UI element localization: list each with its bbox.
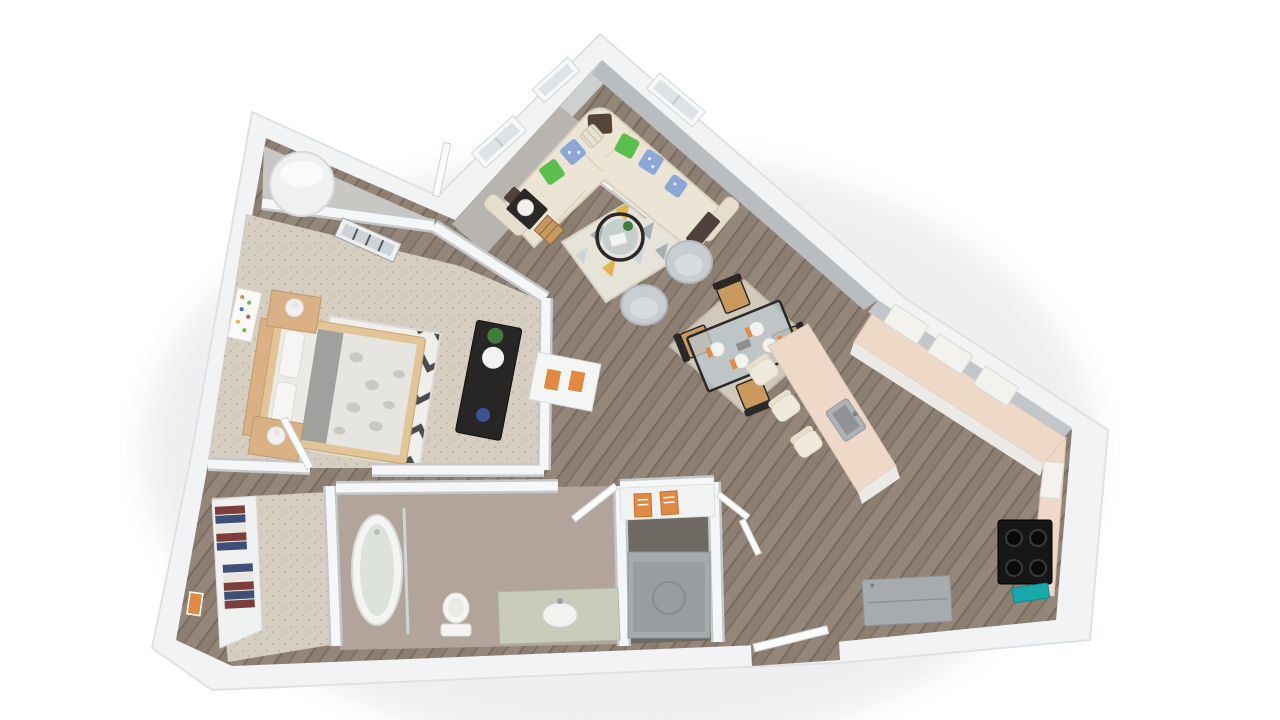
detergent-box-2 [660,491,679,515]
washer-dryer [628,552,710,638]
floorplan-svg: Isometric 3D rendering of a one-bedroom,… [0,0,1280,720]
bathtub [352,515,402,625]
vanity-sink [543,603,577,627]
vanity [498,588,620,644]
closet-wall-art [187,592,203,616]
barrel-chair-1 [666,241,712,283]
coffee-table [597,214,643,260]
folded-clothes-stack-1 [215,505,247,551]
floorplan-canvas: Isometric 3D rendering of a one-bedroom,… [0,0,1280,720]
detergent-box-1 [634,493,652,517]
nightstand-1 [266,290,321,333]
barrel-chair-2 [621,285,667,325]
upper-cabinet-4 [1040,461,1064,499]
vanity-faucet [557,598,563,604]
toilet [441,593,471,636]
folded-clothes-stack-2 [223,563,255,609]
refrigerator [862,575,952,626]
coffee-table-plant [623,221,633,231]
cooktop [998,520,1052,584]
laundry-closet: Laundry Closet [620,484,715,638]
utility-closet: Utility Closet [270,152,334,216]
entry-opening [750,622,840,666]
